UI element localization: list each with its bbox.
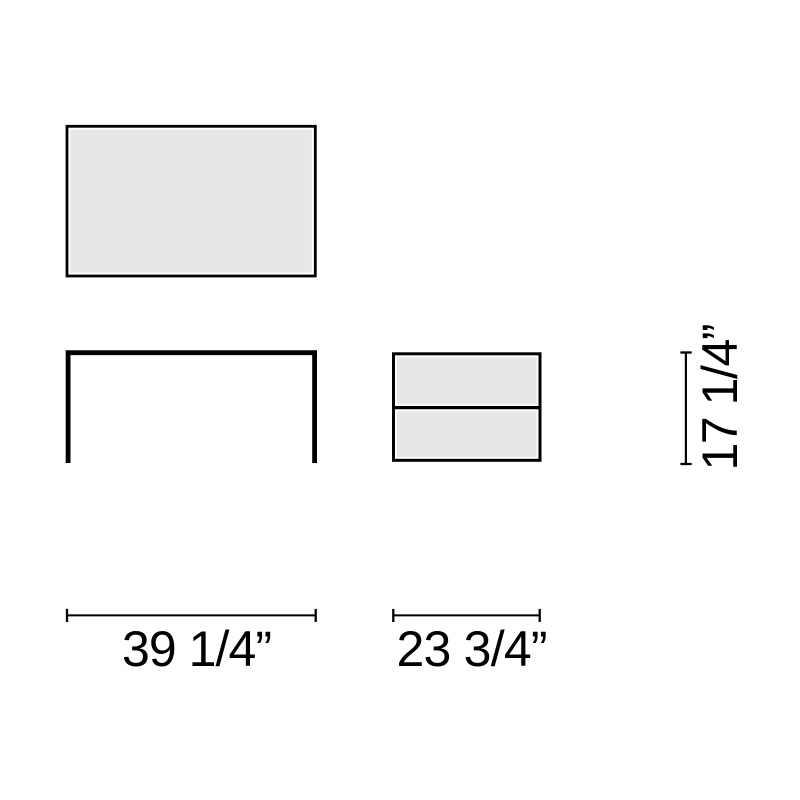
svg-text:23 3/4”: 23 3/4”	[397, 621, 548, 677]
svg-text:39 1/4”: 39 1/4”	[122, 621, 272, 677]
svg-text:17 1/4”: 17 1/4”	[692, 324, 748, 471]
